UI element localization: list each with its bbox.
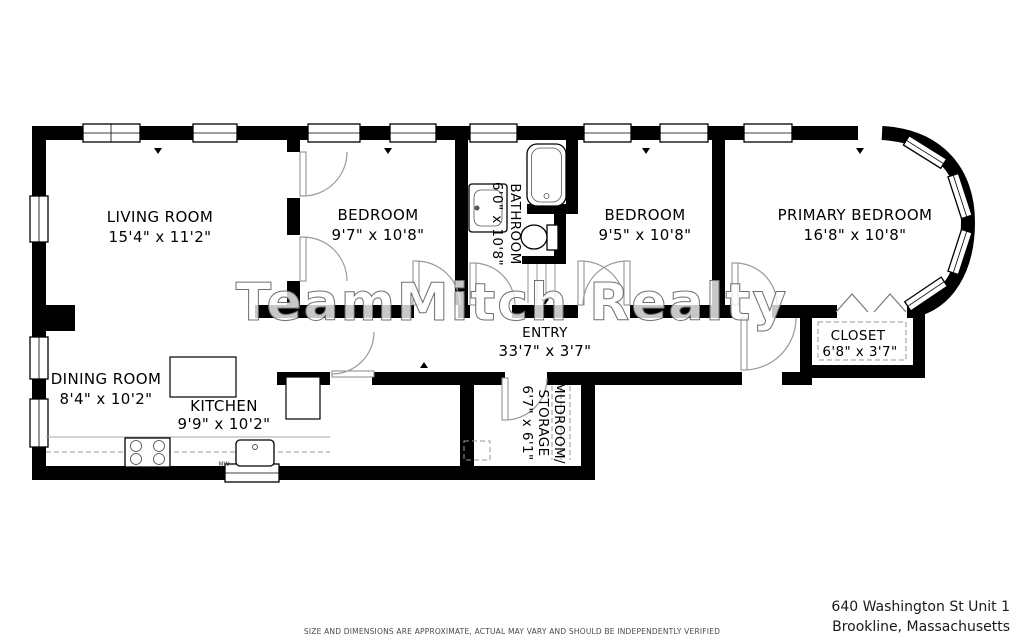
microwave-label: MW: [218, 461, 229, 468]
window: [83, 124, 140, 142]
svg-text:BATHROOM: BATHROOM: [507, 183, 523, 264]
window: [193, 124, 237, 142]
wall-mudroom-left: [460, 372, 474, 480]
svg-text:9'9" x 10'2": 9'9" x 10'2": [178, 415, 271, 433]
wall-closet-bottom: [800, 365, 925, 378]
svg-text:BEDROOM: BEDROOM: [604, 206, 685, 224]
svg-text:STORAGE: STORAGE: [535, 389, 551, 456]
wall-mid-seg: [32, 305, 57, 318]
dimension-tick: [642, 148, 650, 154]
wall-top: [32, 126, 858, 140]
dimension-tick: [856, 148, 864, 154]
wall-living-bed1: [287, 198, 300, 235]
window: [30, 337, 48, 379]
door: [300, 152, 347, 196]
wall-tub: [566, 140, 578, 210]
dimension-tick: [154, 148, 162, 154]
living-room-label: LIVING ROOM 15'4" x 11'2": [107, 208, 213, 246]
bathtub: [527, 144, 566, 206]
svg-text:6'0" x 10'8": 6'0" x 10'8": [489, 182, 505, 266]
wall-mudroom-bottom: [460, 466, 595, 480]
disclaimer-text: SIZE AND DIMENSIONS ARE APPROXIMATE, ACT…: [304, 627, 720, 636]
kitchen-label: KITCHEN 9'9" x 10'2": [178, 397, 271, 433]
window: [584, 124, 631, 142]
stove: [125, 438, 170, 467]
svg-text:6'7" x 6'1": 6'7" x 6'1": [519, 385, 535, 460]
svg-text:8'4" x 10'2": 8'4" x 10'2": [60, 390, 153, 408]
dining-room-label: DINING ROOM 8'4" x 10'2": [51, 370, 162, 408]
svg-text:16'8" x 10'8": 16'8" x 10'8": [804, 226, 907, 244]
window: [308, 124, 360, 142]
dimension-tick: [384, 148, 392, 154]
wall-mudroom-right: [581, 372, 595, 480]
wall-hall-bottom: [372, 372, 505, 385]
window: [30, 196, 48, 242]
mudroom-label: MUDROOM/ STORAGE 6'7" x 6'1": [519, 382, 567, 464]
wall-hall-bottom: [547, 372, 742, 385]
svg-text:15'4" x 11'2": 15'4" x 11'2": [109, 228, 212, 246]
floorplan-svg: MW TeamMitch Realty LIVING ROOM 15'4" x …: [0, 0, 1024, 640]
floorplan-page: MW TeamMitch Realty LIVING ROOM 15'4" x …: [0, 0, 1024, 640]
footer: 640 Washington St Unit 1 Brookline, Mass…: [304, 599, 1010, 636]
wall-linen: [522, 256, 566, 264]
svg-text:KITCHEN: KITCHEN: [190, 397, 258, 415]
svg-text:33'7" x 3'7": 33'7" x 3'7": [499, 342, 592, 360]
dimension-tick: [420, 362, 428, 368]
svg-text:DINING ROOM: DINING ROOM: [51, 370, 162, 388]
bedroom2-label: BEDROOM 9'5" x 10'8": [599, 206, 692, 244]
window: [30, 399, 48, 447]
svg-text:ENTRY: ENTRY: [522, 325, 568, 341]
window: [470, 124, 517, 142]
address-line2: Brookline, Massachusetts: [832, 619, 1010, 635]
svg-text:BEDROOM: BEDROOM: [337, 206, 418, 224]
svg-text:9'5" x 10'8": 9'5" x 10'8": [599, 226, 692, 244]
svg-text:MUDROOM/: MUDROOM/: [551, 382, 567, 464]
svg-text:PRIMARY BEDROOM: PRIMARY BEDROOM: [778, 206, 933, 224]
svg-text:LIVING ROOM: LIVING ROOM: [107, 208, 213, 226]
window: [744, 124, 792, 142]
window: [225, 464, 279, 482]
kitchen-island: [170, 357, 236, 397]
toilet: [521, 225, 558, 250]
wall-living-bed1: [287, 140, 300, 152]
address-line1: 640 Washington St Unit 1: [831, 599, 1010, 615]
door: [332, 332, 374, 377]
svg-text:CLOSET: CLOSET: [831, 328, 886, 344]
svg-text:6'8" x 3'7": 6'8" x 3'7": [822, 344, 897, 360]
window: [390, 124, 436, 142]
refrigerator: [286, 377, 320, 419]
closet-bifold-doors: [836, 294, 906, 312]
closet-label: CLOSET 6'8" x 3'7": [822, 328, 897, 360]
kitchen-sink: [236, 440, 274, 466]
primary-bedroom-label: PRIMARY BEDROOM 16'8" x 10'8": [778, 206, 933, 244]
window: [660, 124, 708, 142]
bedroom1-label: BEDROOM 9'7" x 10'8": [332, 206, 425, 244]
watermark-text: TeamMitch Realty: [236, 273, 788, 333]
svg-text:9'7" x 10'8": 9'7" x 10'8": [332, 226, 425, 244]
